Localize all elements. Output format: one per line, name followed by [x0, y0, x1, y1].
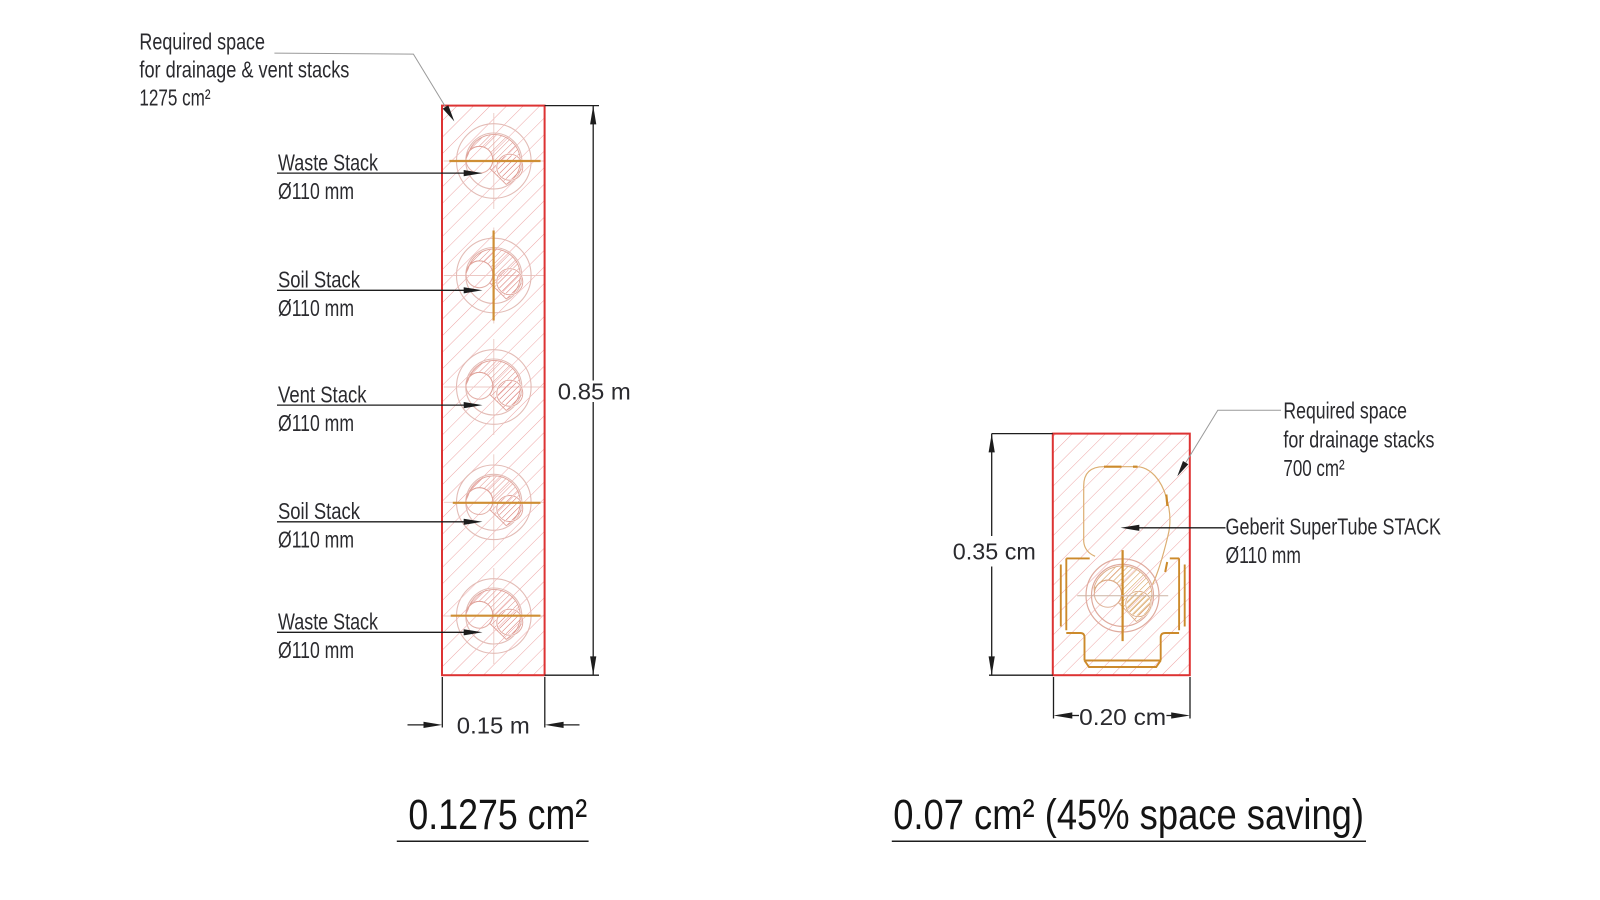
svg-text:Ø110 mm: Ø110 mm — [278, 295, 354, 321]
svg-text:Ø110 mm: Ø110 mm — [278, 410, 354, 436]
svg-text:Required space: Required space — [139, 28, 265, 54]
svg-text:700 cm²: 700 cm² — [1283, 455, 1344, 481]
svg-text:Soil Stack: Soil Stack — [278, 498, 360, 524]
svg-text:0.35 cm: 0.35 cm — [953, 539, 1036, 565]
svg-text:0.85 m: 0.85 m — [558, 379, 631, 405]
svg-text:1275 cm²: 1275 cm² — [139, 84, 210, 110]
svg-text:for drainage stacks: for drainage stacks — [1283, 426, 1434, 452]
svg-text:0.20 cm: 0.20 cm — [1079, 704, 1166, 730]
svg-text:Ø110 mm: Ø110 mm — [278, 637, 354, 663]
svg-text:0.1275 cm²: 0.1275 cm² — [408, 791, 587, 839]
svg-text:0.07 cm² (45% space saving): 0.07 cm² (45% space saving) — [893, 791, 1364, 839]
svg-text:Vent Stack: Vent Stack — [278, 381, 367, 407]
svg-text:0.15 m: 0.15 m — [457, 713, 530, 739]
svg-text:Waste Stack: Waste Stack — [278, 609, 378, 635]
svg-text:Soil Stack: Soil Stack — [278, 267, 360, 293]
svg-text:Waste Stack: Waste Stack — [278, 149, 378, 175]
svg-text:Ø110 mm: Ø110 mm — [278, 178, 354, 204]
svg-text:Required space: Required space — [1283, 397, 1407, 423]
svg-text:for drainage & vent stacks: for drainage & vent stacks — [139, 57, 349, 83]
svg-text:Ø110 mm: Ø110 mm — [1226, 542, 1301, 568]
svg-text:Ø110 mm: Ø110 mm — [278, 527, 354, 553]
svg-text:Geberit SuperTube STACK: Geberit SuperTube STACK — [1226, 513, 1442, 539]
